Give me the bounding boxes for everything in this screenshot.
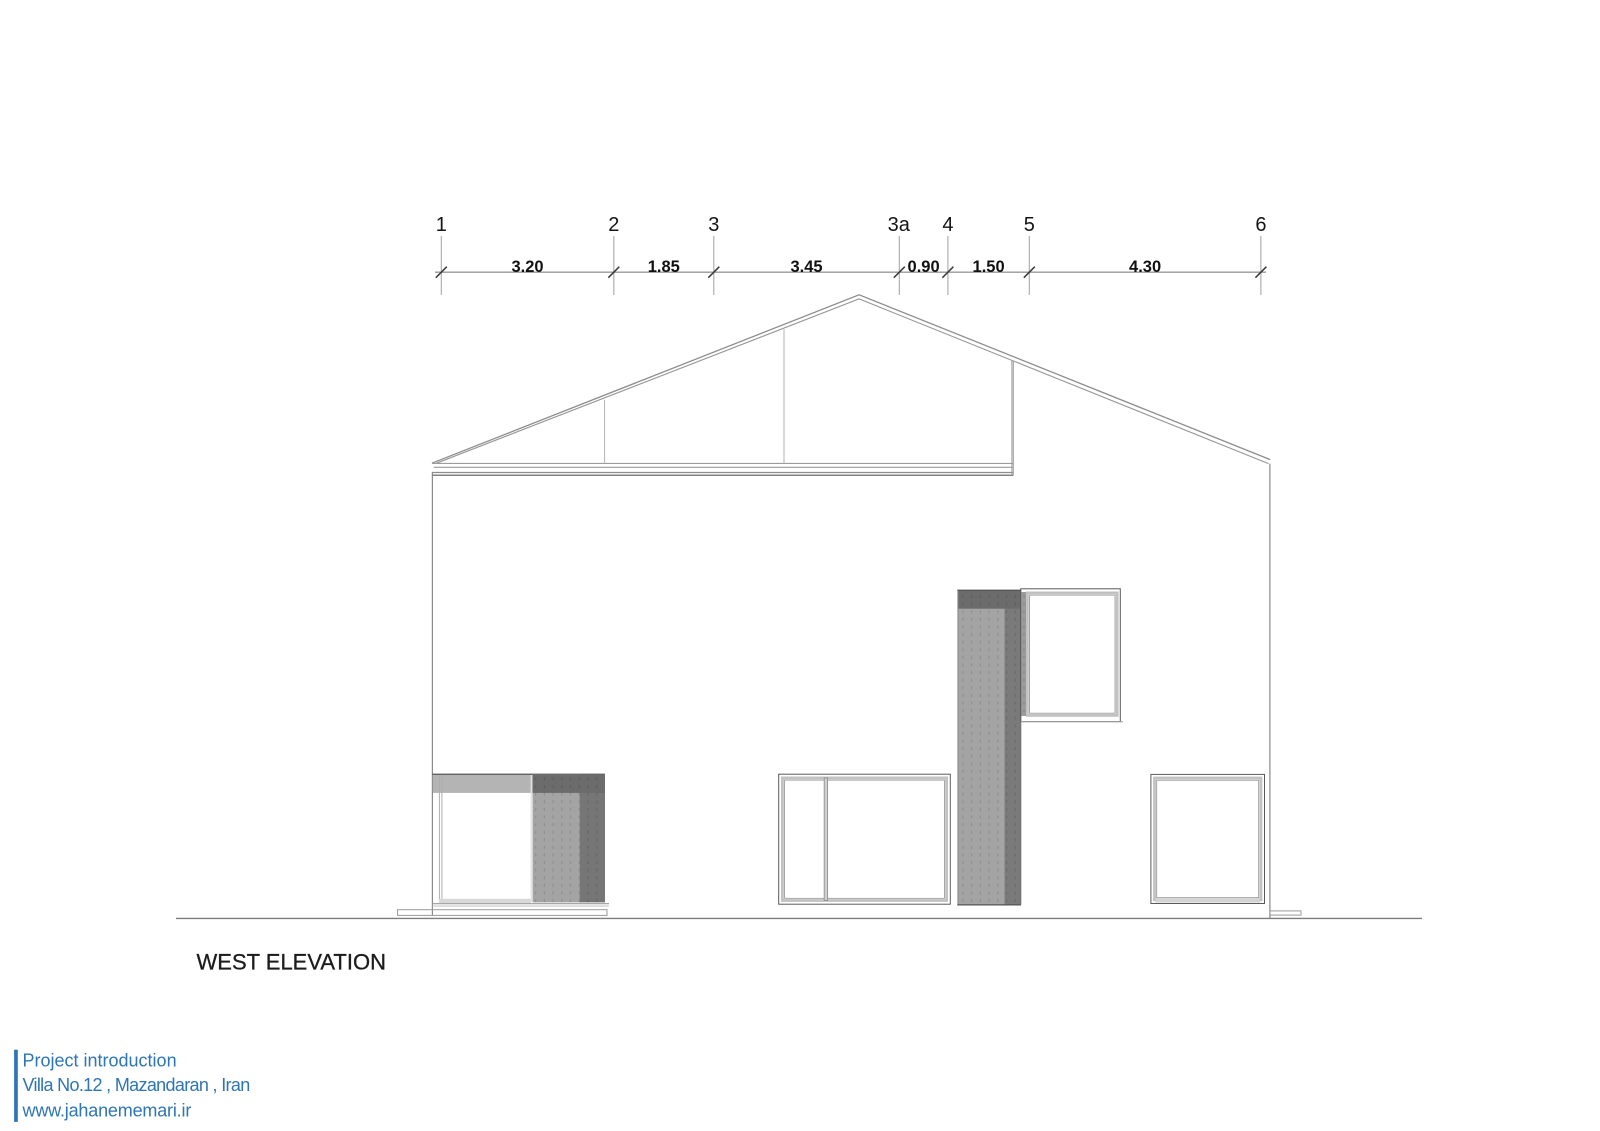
svg-text:3: 3 [708, 214, 719, 236]
svg-text:3.20: 3.20 [511, 258, 543, 276]
svg-text:0.90: 0.90 [908, 258, 940, 276]
svg-text:1.50: 1.50 [973, 258, 1005, 276]
svg-text:1: 1 [436, 214, 447, 236]
svg-text:Project introduction: Project introduction [23, 1051, 177, 1071]
svg-text:Villa No.12 , Mazandaran , Ira: Villa No.12 , Mazandaran , Iran [23, 1075, 250, 1095]
svg-text:3.45: 3.45 [790, 258, 822, 276]
svg-text:4.30: 4.30 [1129, 258, 1161, 276]
svg-text:www.jahanememari.ir: www.jahanememari.ir [22, 1100, 192, 1120]
svg-text:6: 6 [1255, 214, 1266, 236]
svg-text:5: 5 [1024, 214, 1035, 236]
svg-text:4: 4 [942, 214, 953, 236]
svg-text:1.85: 1.85 [648, 258, 680, 276]
svg-text:2: 2 [608, 214, 619, 236]
svg-text:WEST ELEVATION: WEST ELEVATION [197, 949, 386, 974]
svg-text:3a: 3a [888, 214, 911, 236]
